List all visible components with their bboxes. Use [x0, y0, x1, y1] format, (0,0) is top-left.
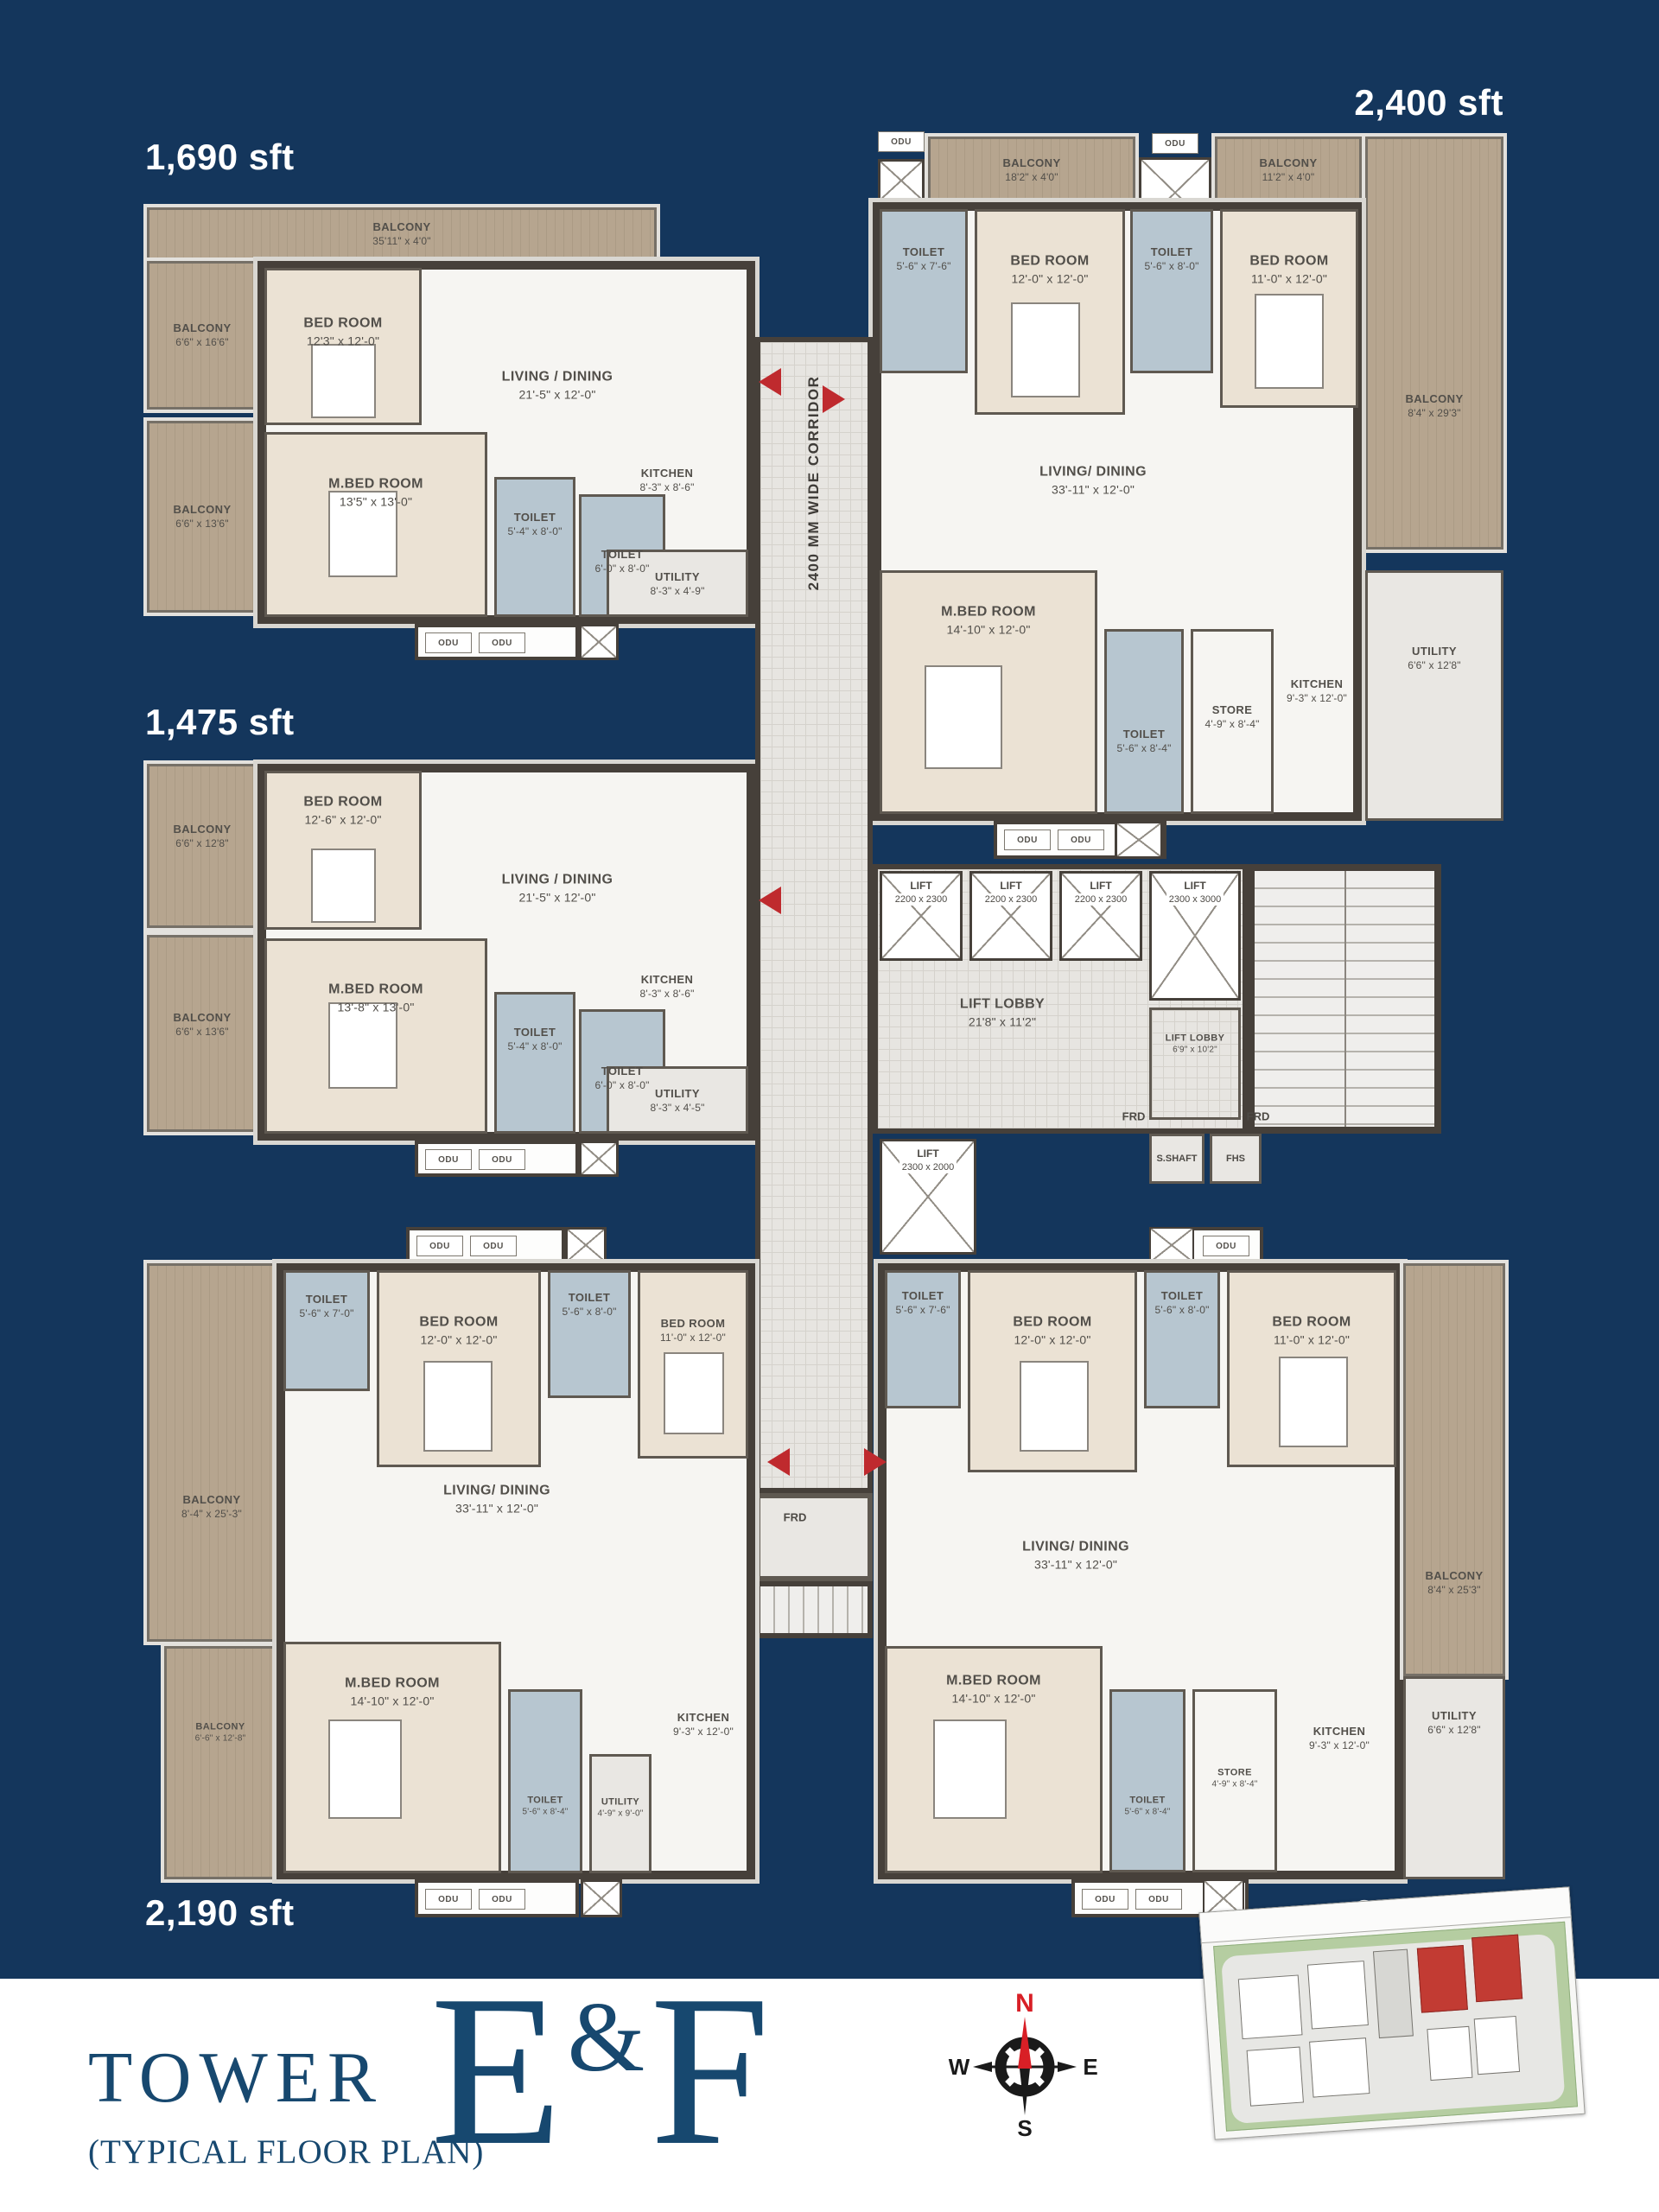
room-label-master-bedroom: M.BED ROOM13'5" x 13'-0" — [328, 476, 423, 510]
bed-icon — [1011, 302, 1080, 397]
bed-icon — [664, 1352, 724, 1434]
s-shaft-label: S.SHAFT — [1156, 1154, 1197, 1164]
room-label-toilet: TOILET5'-6" x 7'-6" — [896, 245, 950, 273]
odu-label: ODU — [1148, 1895, 1169, 1904]
odu-label: ODU — [438, 1155, 459, 1165]
shaft-icon — [579, 624, 619, 660]
room-label-toilet: TOILET5'-6" x 7'-6" — [895, 1289, 950, 1317]
compass-s: S — [1017, 2115, 1032, 2141]
page-subtitle: (TYPICAL FLOOR PLAN) — [88, 2133, 484, 2171]
site-building-tower-e — [1417, 1945, 1467, 2013]
room-label-kitchen: KITCHEN9'-3" x 12'-0" — [1287, 677, 1347, 705]
room-label-bedroom: BED ROOM11'-0" x 12'-0" — [1272, 1314, 1351, 1348]
room-toilet — [494, 477, 575, 617]
room-label-bedroom: BED ROOM11'-0" x 12'-0" — [1249, 253, 1328, 287]
room-label-master-bedroom: M.BED ROOM14'-10" x 12'-0" — [345, 1675, 440, 1709]
room-label-balcony: BALCONY18'2" x 4'0" — [1002, 156, 1060, 184]
lift-shaft: LIFT2300 x 3000 — [1149, 871, 1241, 1001]
room-label-store: STORE4'-9" x 8'-4" — [1212, 1766, 1258, 1789]
room-label-living: LIVING/ DINING33'-11" x 12'-0" — [443, 1483, 550, 1516]
room-label-toilet: TOILET6'-0" x 8'-0" — [594, 548, 649, 575]
stair-divider — [1344, 871, 1346, 1127]
odu-unit: ODU — [425, 1889, 472, 1910]
room-toilet — [508, 1689, 582, 1873]
odu-label: ODU — [891, 137, 912, 147]
room-label-master-bedroom: M.BED ROOM13'-8" x 13'-0" — [328, 982, 423, 1015]
shaft-icon — [581, 1879, 622, 1917]
room-label-toilet: TOILET5'-6" x 8'-4" — [523, 1794, 569, 1817]
area-label-1475: 1,475 sft — [145, 702, 295, 743]
compass-west-point — [973, 2062, 992, 2072]
entry-arrow-right-icon — [864, 1448, 887, 1476]
bed-icon — [925, 665, 1002, 769]
bed-icon — [311, 849, 376, 923]
bed-icon — [328, 1002, 397, 1089]
room-label-bedroom: BED ROOM12'-0" x 12'-0" — [1010, 253, 1089, 287]
odu-unit: ODU — [479, 1149, 525, 1170]
odu-unit: ODU — [425, 1149, 472, 1170]
frd-label: FRD — [1247, 1110, 1270, 1123]
frd-room — [755, 1493, 873, 1581]
odu-label: ODU — [1071, 836, 1091, 845]
room-label-toilet: TOILET5'-6" x 8'-4" — [1125, 1794, 1171, 1817]
entry-arrow-left-icon — [759, 887, 781, 914]
room-label-toilet: TOILET6'-0" x 8'-0" — [594, 1065, 649, 1092]
odu-label: ODU — [492, 639, 512, 648]
room-label-balcony: BALCONY6'6" x 13'6" — [173, 503, 231, 531]
odu-unit: ODU — [1082, 1889, 1128, 1910]
shaft-icon — [565, 1227, 607, 1263]
room-toilet — [548, 1270, 631, 1398]
odu-label: ODU — [438, 1895, 459, 1904]
odu-label: ODU — [1165, 139, 1185, 149]
corridor-label: 2400 MM WIDE CORRIDOR — [805, 340, 823, 626]
room-label-utility: UTILITY6'6" x 12'8" — [1427, 1709, 1481, 1737]
balcony — [164, 1646, 276, 1879]
bed-icon — [1020, 1361, 1089, 1452]
room-label-utility: UTILITY8'-3" x 4'-5" — [650, 1087, 704, 1115]
floor-plan-canvas: 1,690 sft ODU ODU BALCONY35'11" x 4'0" B… — [0, 0, 1659, 2212]
room-label-balcony: BALCONY35'11" x 4'0" — [372, 220, 431, 248]
room-label-kitchen: KITCHEN8'-3" x 8'-6" — [639, 467, 694, 494]
room-label-toilet: TOILET5'-4" x 8'-0" — [507, 1026, 562, 1053]
room-label-toilet: TOILET5'-6" x 7'-0" — [299, 1293, 353, 1320]
odu-label: ODU — [1017, 836, 1038, 845]
room-label-bedroom: BED ROOM12'-0" x 12'-0" — [419, 1314, 498, 1348]
bed-icon — [423, 1361, 493, 1452]
room-label-master-bedroom: M.BED ROOM14'-10" x 12'-0" — [941, 604, 1036, 638]
room-label-utility: UTILITY8'-3" x 4'-9" — [650, 570, 704, 598]
compass-n: N — [1015, 1989, 1034, 2018]
room-label-balcony: BALCONY6'6" x 12'8" — [173, 823, 231, 850]
room-label-bedroom: BED ROOM12'-0" x 12'-0" — [1013, 1314, 1091, 1348]
room-label-toilet: TOILET5'-6" x 8'-0" — [1144, 245, 1198, 273]
odu-unit: ODU — [479, 1889, 525, 1910]
room-label-balcony: BALCONY6'-6" x 12'-8" — [195, 1720, 246, 1744]
site-building — [1427, 2026, 1472, 2081]
odu-unit: ODU — [425, 632, 472, 653]
balcony — [1403, 1263, 1505, 1676]
bed-icon — [328, 1719, 402, 1819]
tower-name: E & F — [430, 1963, 770, 2179]
compass-e: E — [1083, 2054, 1097, 2080]
odu-unit: ODU — [1135, 1889, 1182, 1910]
shaft-icon — [579, 1141, 619, 1177]
odu-unit: ODU — [878, 131, 925, 152]
room-label-balcony: BALCONY8'4" x 25'3" — [1425, 1569, 1483, 1597]
room-label-balcony: BALCONY8'4" x 29'3" — [1405, 392, 1463, 420]
lift-shaft: LIFT2200 x 2300 — [880, 871, 963, 961]
odu-label: ODU — [492, 1895, 512, 1904]
tower-letter-e: E — [430, 1963, 563, 2179]
room-label-living: LIVING / DINING21'-5" x 12'-0" — [502, 872, 613, 906]
odu-unit: ODU — [1152, 133, 1198, 154]
bed-icon — [1255, 294, 1324, 389]
odu-unit: ODU — [1058, 829, 1104, 850]
room-label-master-bedroom: M.BED ROOM14'-10" x 12'-0" — [946, 1673, 1041, 1707]
room-label-living: LIVING/ DINING33'-11" x 12'-0" — [1039, 464, 1147, 498]
lift-shaft: LIFT2200 x 2300 — [969, 871, 1052, 961]
room-label-balcony: BALCONY6'6" x 13'6" — [173, 1011, 231, 1039]
tower-letter-f: F — [650, 1963, 770, 2179]
lift-shaft: LIFT2200 x 2300 — [1059, 871, 1142, 961]
room-label-kitchen: KITCHEN9'-3" x 12'-0" — [673, 1711, 734, 1738]
odu-unit: ODU — [470, 1236, 517, 1256]
room-toilet — [494, 992, 575, 1134]
shaft-icon — [1115, 821, 1163, 859]
room-label-balcony: BALCONY6'6" x 16'6" — [173, 321, 231, 349]
room-label-balcony: BALCONY8'-4" x 25'-3" — [181, 1493, 242, 1521]
room-label-utility: UTILITY4'-9" x 9'-0" — [598, 1796, 644, 1819]
room-label-toilet: TOILET5'-6" x 8'-4" — [1116, 728, 1171, 755]
room-label-toilet: TOILET5'-4" x 8'-0" — [507, 511, 562, 538]
room-label-toilet: TOILET5'-6" x 8'-0" — [1154, 1289, 1209, 1317]
odu-unit: ODU — [1004, 829, 1051, 850]
odu-label: ODU — [492, 1155, 512, 1165]
lift-lobby-small-label: LIFT LOBBY6'9" x 10'2" — [1166, 1032, 1225, 1055]
balcony — [1365, 137, 1503, 550]
frd-label: FRD — [784, 1511, 807, 1524]
area-label-1690: 1,690 sft — [145, 137, 295, 178]
area-label-2190-left: 2,190 sft — [145, 1892, 295, 1934]
ampersand: & — [568, 1987, 645, 2087]
entry-arrow-left-icon — [767, 1448, 790, 1476]
room-label-toilet: TOILET5'-6" x 8'-0" — [562, 1291, 616, 1319]
site-building-tower-f — [1472, 1934, 1522, 2002]
bed-icon — [311, 344, 376, 418]
compass-w: W — [949, 2054, 970, 2080]
balcony — [147, 1263, 276, 1642]
shaft-icon — [1149, 1227, 1194, 1263]
room-label-bedroom: BED ROOM11'-0" x 12'-0" — [660, 1317, 726, 1344]
lift-shaft: LIFT2300 x 2000 — [880, 1139, 976, 1255]
room-label-store: STORE4'-9" x 8'-4" — [1205, 703, 1259, 731]
staircase — [755, 1581, 873, 1638]
odu-unit: ODU — [479, 632, 525, 653]
frd-label: FRD — [1122, 1110, 1146, 1123]
room-toilet — [880, 209, 968, 373]
site-building — [1246, 2047, 1303, 2107]
odu-unit: ODU — [1203, 1236, 1249, 1256]
room-label-utility: UTILITY6'6" x 12'8" — [1408, 645, 1461, 672]
room-label-kitchen: KITCHEN8'-3" x 8'-6" — [639, 973, 694, 1001]
site-building — [1474, 2016, 1520, 2075]
entry-arrow-left-icon — [759, 368, 781, 396]
room-utility — [1365, 570, 1503, 821]
room-label-bedroom: BED ROOM12'-6" x 12'-0" — [303, 794, 382, 828]
room-toilet — [1104, 629, 1184, 814]
lift-lobby-small — [1149, 1007, 1241, 1120]
lift-lobby-label: LIFT LOBBY21'8" x 11'2" — [960, 996, 1045, 1030]
site-building — [1373, 1948, 1414, 2038]
room-label-balcony: BALCONY11'2" x 4'0" — [1259, 156, 1317, 184]
room-label-bedroom: BED ROOM12'3" x 12'-0" — [303, 315, 382, 349]
odu-label: ODU — [438, 639, 459, 648]
site-plan-inset — [1198, 1886, 1585, 2139]
staircase — [1248, 864, 1441, 1134]
room-label-kitchen: KITCHEN9'-3" x 12'-0" — [1309, 1725, 1370, 1752]
site-building — [1237, 1974, 1302, 2039]
room-label-living: LIVING / DINING21'-5" x 12'-0" — [502, 369, 613, 403]
room-toilet — [1130, 209, 1213, 373]
room-label-living: LIVING/ DINING33'-11" x 12'-0" — [1022, 1539, 1129, 1573]
site-building — [1309, 2037, 1370, 2097]
fhs-label: FHS — [1226, 1154, 1245, 1164]
area-label-2400: 2,400 sft — [1296, 82, 1503, 124]
room-toilet — [283, 1270, 370, 1391]
odu-unit: ODU — [416, 1236, 463, 1256]
site-building — [1307, 1961, 1369, 2030]
page-title: TOWER — [88, 2036, 384, 2120]
room-toilet — [1109, 1689, 1185, 1872]
bed-icon — [1279, 1357, 1348, 1447]
odu-label: ODU — [429, 1242, 450, 1251]
entry-arrow-right-icon — [823, 385, 845, 413]
bed-icon — [933, 1719, 1007, 1819]
room-utility — [1403, 1676, 1505, 1879]
odu-label: ODU — [1095, 1895, 1116, 1904]
compass-icon: N W E S — [947, 1987, 1103, 2143]
odu-label: ODU — [1216, 1242, 1236, 1251]
compass-east-point — [1058, 2062, 1077, 2072]
shaft-icon — [878, 159, 925, 202]
odu-label: ODU — [483, 1242, 504, 1251]
